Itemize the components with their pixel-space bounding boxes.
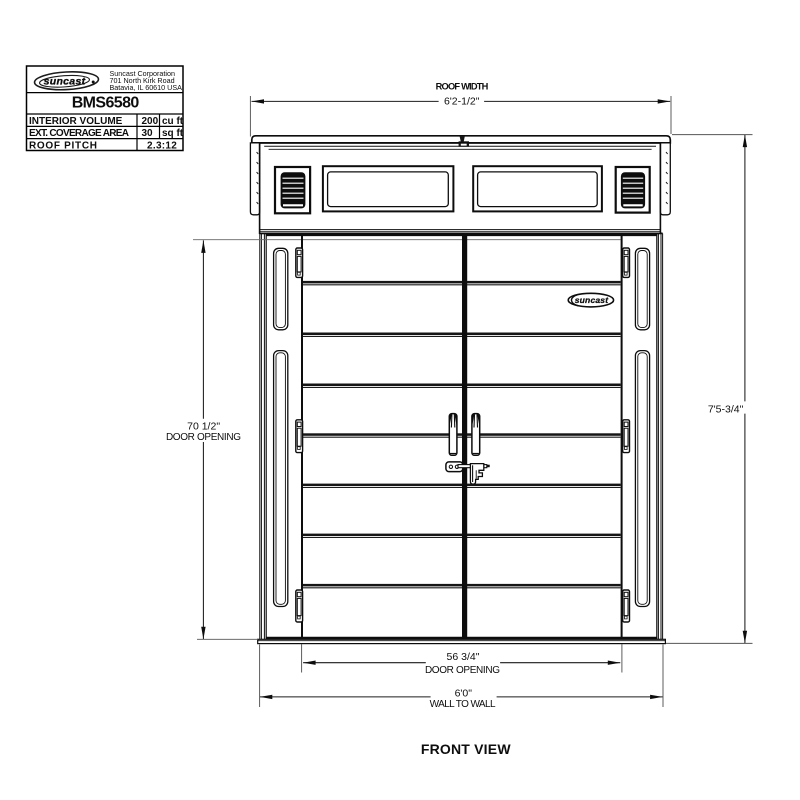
svg-text:suncast: suncast: [575, 295, 609, 305]
svg-text:6'2-1/2": 6'2-1/2": [444, 96, 480, 108]
svg-text:INTERIOR VOLUME: INTERIOR VOLUME: [29, 116, 123, 127]
svg-text:6'0": 6'0": [455, 687, 473, 699]
svg-text:DOOR OPENING: DOOR OPENING: [166, 432, 241, 443]
svg-text:cu ft: cu ft: [162, 116, 184, 127]
svg-text:30: 30: [142, 128, 154, 139]
svg-text:56 3/4": 56 3/4": [447, 651, 480, 663]
svg-text:Batavia, IL 60610 USA: Batavia, IL 60610 USA: [110, 83, 183, 92]
svg-text:FRONT VIEW: FRONT VIEW: [421, 741, 511, 757]
svg-text:ROOF PITCH: ROOF PITCH: [29, 140, 98, 151]
svg-text:ROOF WIDTH: ROOF WIDTH: [436, 82, 489, 92]
svg-text:70 1/2": 70 1/2": [187, 421, 220, 433]
svg-text:DOOR OPENING: DOOR OPENING: [425, 665, 500, 676]
svg-text:BMS6580: BMS6580: [72, 94, 140, 111]
svg-text:suncast: suncast: [44, 76, 86, 88]
svg-text:7'5-3/4": 7'5-3/4": [708, 403, 744, 415]
svg-text:EXT. COVERAGE AREA: EXT. COVERAGE AREA: [29, 128, 129, 139]
svg-text:WALL TO WALL: WALL TO WALL: [430, 699, 496, 710]
svg-text:sq ft: sq ft: [162, 128, 184, 139]
svg-text:2.3:12: 2.3:12: [147, 140, 177, 151]
svg-text:200: 200: [142, 116, 159, 127]
